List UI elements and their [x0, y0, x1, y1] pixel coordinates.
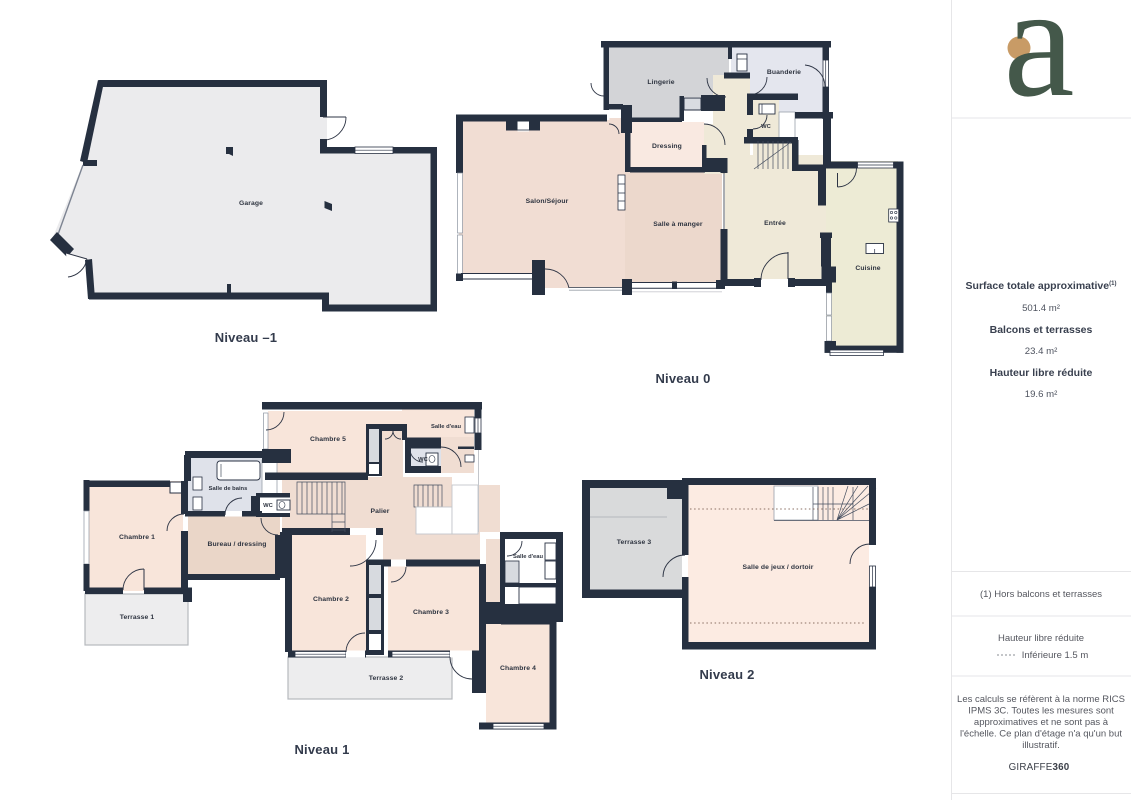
svg-text:WC: WC [418, 457, 428, 463]
svg-text:Inférieure 1.5 m: Inférieure 1.5 m [1022, 650, 1089, 661]
svg-text:Hauteur libre réduite: Hauteur libre réduite [998, 633, 1084, 644]
svg-text:a: a [1003, 0, 1074, 130]
svg-text:approximatives et ne sont pas: approximatives et ne sont pas à [974, 717, 1109, 728]
svg-text:l'échelle. Ce plan d'étage n'a: l'échelle. Ce plan d'étage n'a qu'un but [960, 729, 1122, 740]
svg-text:Chambre 1: Chambre 1 [119, 534, 155, 541]
svg-text:Salon/Séjour: Salon/Séjour [526, 198, 569, 205]
svg-text:Garage: Garage [239, 200, 263, 207]
svg-text:Terrasse 1: Terrasse 1 [120, 614, 155, 621]
svg-text:Balcons et terrasses: Balcons et terrasses [990, 324, 1093, 336]
svg-text:Niveau 0: Niveau 0 [655, 371, 710, 386]
svg-text:Chambre 2: Chambre 2 [313, 596, 349, 603]
svg-text:Chambre 3: Chambre 3 [413, 609, 449, 616]
svg-text:Niveau –1: Niveau –1 [215, 330, 278, 345]
svg-text:Niveau 1: Niveau 1 [294, 742, 349, 757]
svg-text:Chambre 5: Chambre 5 [310, 436, 346, 443]
svg-text:Buanderie: Buanderie [767, 69, 801, 76]
svg-text:Entrée: Entrée [764, 220, 786, 227]
svg-text:WC: WC [263, 503, 273, 509]
svg-text:illustratif.: illustratif. [1022, 740, 1059, 751]
svg-text:Surface totale approximative(1: Surface totale approximative(1) [966, 280, 1117, 292]
svg-text:Salle de bains: Salle de bains [209, 486, 248, 492]
svg-text:Bureau / dressing: Bureau / dressing [207, 541, 266, 548]
svg-text:19.6 m²: 19.6 m² [1025, 389, 1058, 400]
svg-text:23.4 m²: 23.4 m² [1025, 346, 1058, 357]
svg-text:Salle de jeux / dortoir: Salle de jeux / dortoir [742, 564, 813, 571]
svg-text:Lingerie: Lingerie [647, 79, 674, 86]
svg-text:Niveau 2: Niveau 2 [699, 667, 754, 682]
svg-text:Les calculs se réfèrent à la n: Les calculs se réfèrent à la norme RICS [957, 694, 1125, 705]
svg-text:Terrasse 2: Terrasse 2 [369, 675, 404, 682]
svg-text:Salle d'eau: Salle d'eau [431, 424, 462, 430]
svg-text:Terrasse 3: Terrasse 3 [617, 539, 652, 546]
svg-text:Cuisine: Cuisine [855, 265, 880, 272]
svg-text:IPMS 3C. Toutes les mesures so: IPMS 3C. Toutes les mesures sont [968, 706, 1114, 717]
svg-text:Salle à manger: Salle à manger [653, 221, 703, 228]
svg-text:Chambre 4: Chambre 4 [500, 665, 536, 672]
svg-text:501.4 m²: 501.4 m² [1022, 303, 1061, 314]
svg-text:Salle d'eau: Salle d'eau [513, 554, 544, 560]
svg-text:Dressing: Dressing [652, 143, 682, 150]
svg-text:GIRAFFE360: GIRAFFE360 [1009, 762, 1070, 773]
svg-text:(1) Hors balcons et terrasses: (1) Hors balcons et terrasses [980, 589, 1102, 600]
svg-text:WC: WC [761, 124, 771, 130]
svg-text:Palier: Palier [370, 508, 389, 515]
svg-text:Hauteur libre réduite: Hauteur libre réduite [990, 367, 1093, 379]
